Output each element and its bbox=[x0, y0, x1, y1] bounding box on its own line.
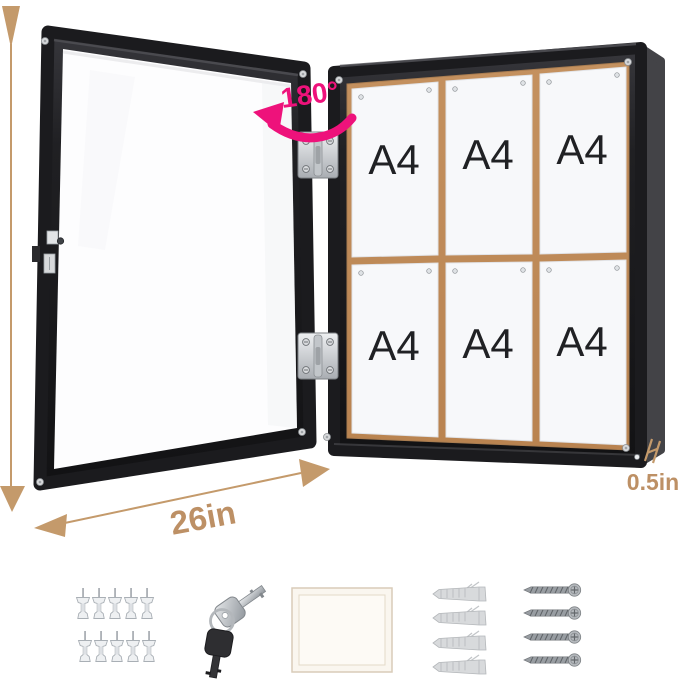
lock-frame-tab bbox=[32, 246, 40, 262]
paper-pin-icon bbox=[547, 80, 552, 85]
door-rivet bbox=[300, 71, 307, 78]
width-arrowhead-right bbox=[299, 459, 330, 487]
width-dimension-label: 26in bbox=[167, 493, 239, 541]
accessories-row bbox=[77, 579, 581, 679]
a4-paper: A4 bbox=[540, 260, 626, 445]
depth-dimension-label: 0.5in bbox=[627, 469, 679, 495]
notice-board-illustration: 28in A4 A4 bbox=[0, 0, 679, 679]
door-rivet bbox=[299, 429, 306, 436]
board-rivet bbox=[623, 445, 630, 452]
push-pin bbox=[127, 631, 140, 662]
door-rivet bbox=[37, 479, 44, 486]
paper-pin-icon bbox=[547, 268, 552, 273]
push-pin bbox=[79, 631, 92, 662]
height-arrowhead-top bbox=[2, 6, 20, 48]
push-pin bbox=[111, 631, 124, 662]
a4-paper: A4 bbox=[540, 67, 626, 254]
paper-pin-icon bbox=[453, 87, 458, 92]
paper-pin-icon bbox=[453, 269, 458, 274]
wall-anchors-group bbox=[433, 582, 486, 674]
lock-keeper-icon bbox=[635, 455, 640, 460]
screw bbox=[524, 607, 581, 619]
paper-pin-icon bbox=[359, 95, 364, 100]
wall-anchor bbox=[433, 582, 486, 601]
a4-paper: A4 bbox=[446, 262, 532, 441]
keys-group bbox=[200, 579, 270, 679]
paper-pin-icon bbox=[359, 271, 364, 276]
paper-pin-icon bbox=[427, 88, 432, 93]
wall-anchor bbox=[433, 655, 486, 674]
product-diagram: 28in A4 A4 bbox=[0, 0, 679, 679]
push-pin bbox=[109, 588, 122, 619]
lock-plate bbox=[47, 231, 58, 244]
a4-paper: A4 bbox=[352, 263, 438, 437]
paper-pin-icon bbox=[615, 266, 620, 271]
door-rivet bbox=[42, 38, 49, 45]
wall-anchor bbox=[433, 631, 486, 650]
a4-paper-label: A4 bbox=[462, 131, 513, 178]
paper-pin-icon bbox=[521, 268, 526, 273]
glass-door bbox=[32, 32, 310, 486]
screw bbox=[524, 584, 581, 596]
notice-board: A4 A4 A4 A4 bbox=[324, 44, 662, 462]
board-rivet bbox=[324, 434, 331, 441]
mounting-card bbox=[292, 588, 392, 672]
push-pins-group bbox=[77, 588, 156, 662]
a4-paper-label: A4 bbox=[556, 126, 607, 173]
a4-paper-label: A4 bbox=[556, 318, 607, 365]
height-arrowhead-bottom bbox=[0, 486, 25, 512]
paper-pin-icon bbox=[615, 73, 620, 78]
a4-paper-label: A4 bbox=[368, 322, 419, 369]
screw bbox=[524, 654, 581, 666]
card-inner bbox=[299, 595, 385, 665]
width-arrowhead-left bbox=[34, 514, 67, 537]
lock-cylinder-icon bbox=[57, 238, 63, 244]
board-rivet bbox=[625, 59, 632, 66]
key-silver bbox=[212, 579, 270, 630]
push-pin bbox=[93, 588, 106, 619]
screws-group bbox=[524, 584, 581, 666]
paper-pin-icon bbox=[521, 81, 526, 86]
a4-paper-label: A4 bbox=[368, 136, 419, 183]
wall-anchor bbox=[433, 606, 486, 625]
push-pin bbox=[77, 588, 90, 619]
key-black bbox=[200, 628, 234, 679]
a4-paper: A4 bbox=[352, 82, 438, 257]
a4-paper: A4 bbox=[446, 75, 532, 255]
hinge-bottom bbox=[298, 333, 338, 379]
push-pin bbox=[141, 588, 154, 619]
push-pin bbox=[143, 631, 156, 662]
screw bbox=[524, 631, 581, 643]
push-pin bbox=[125, 588, 138, 619]
push-pin bbox=[95, 631, 108, 662]
paper-pin-icon bbox=[427, 269, 432, 274]
a4-paper-label: A4 bbox=[462, 320, 513, 367]
